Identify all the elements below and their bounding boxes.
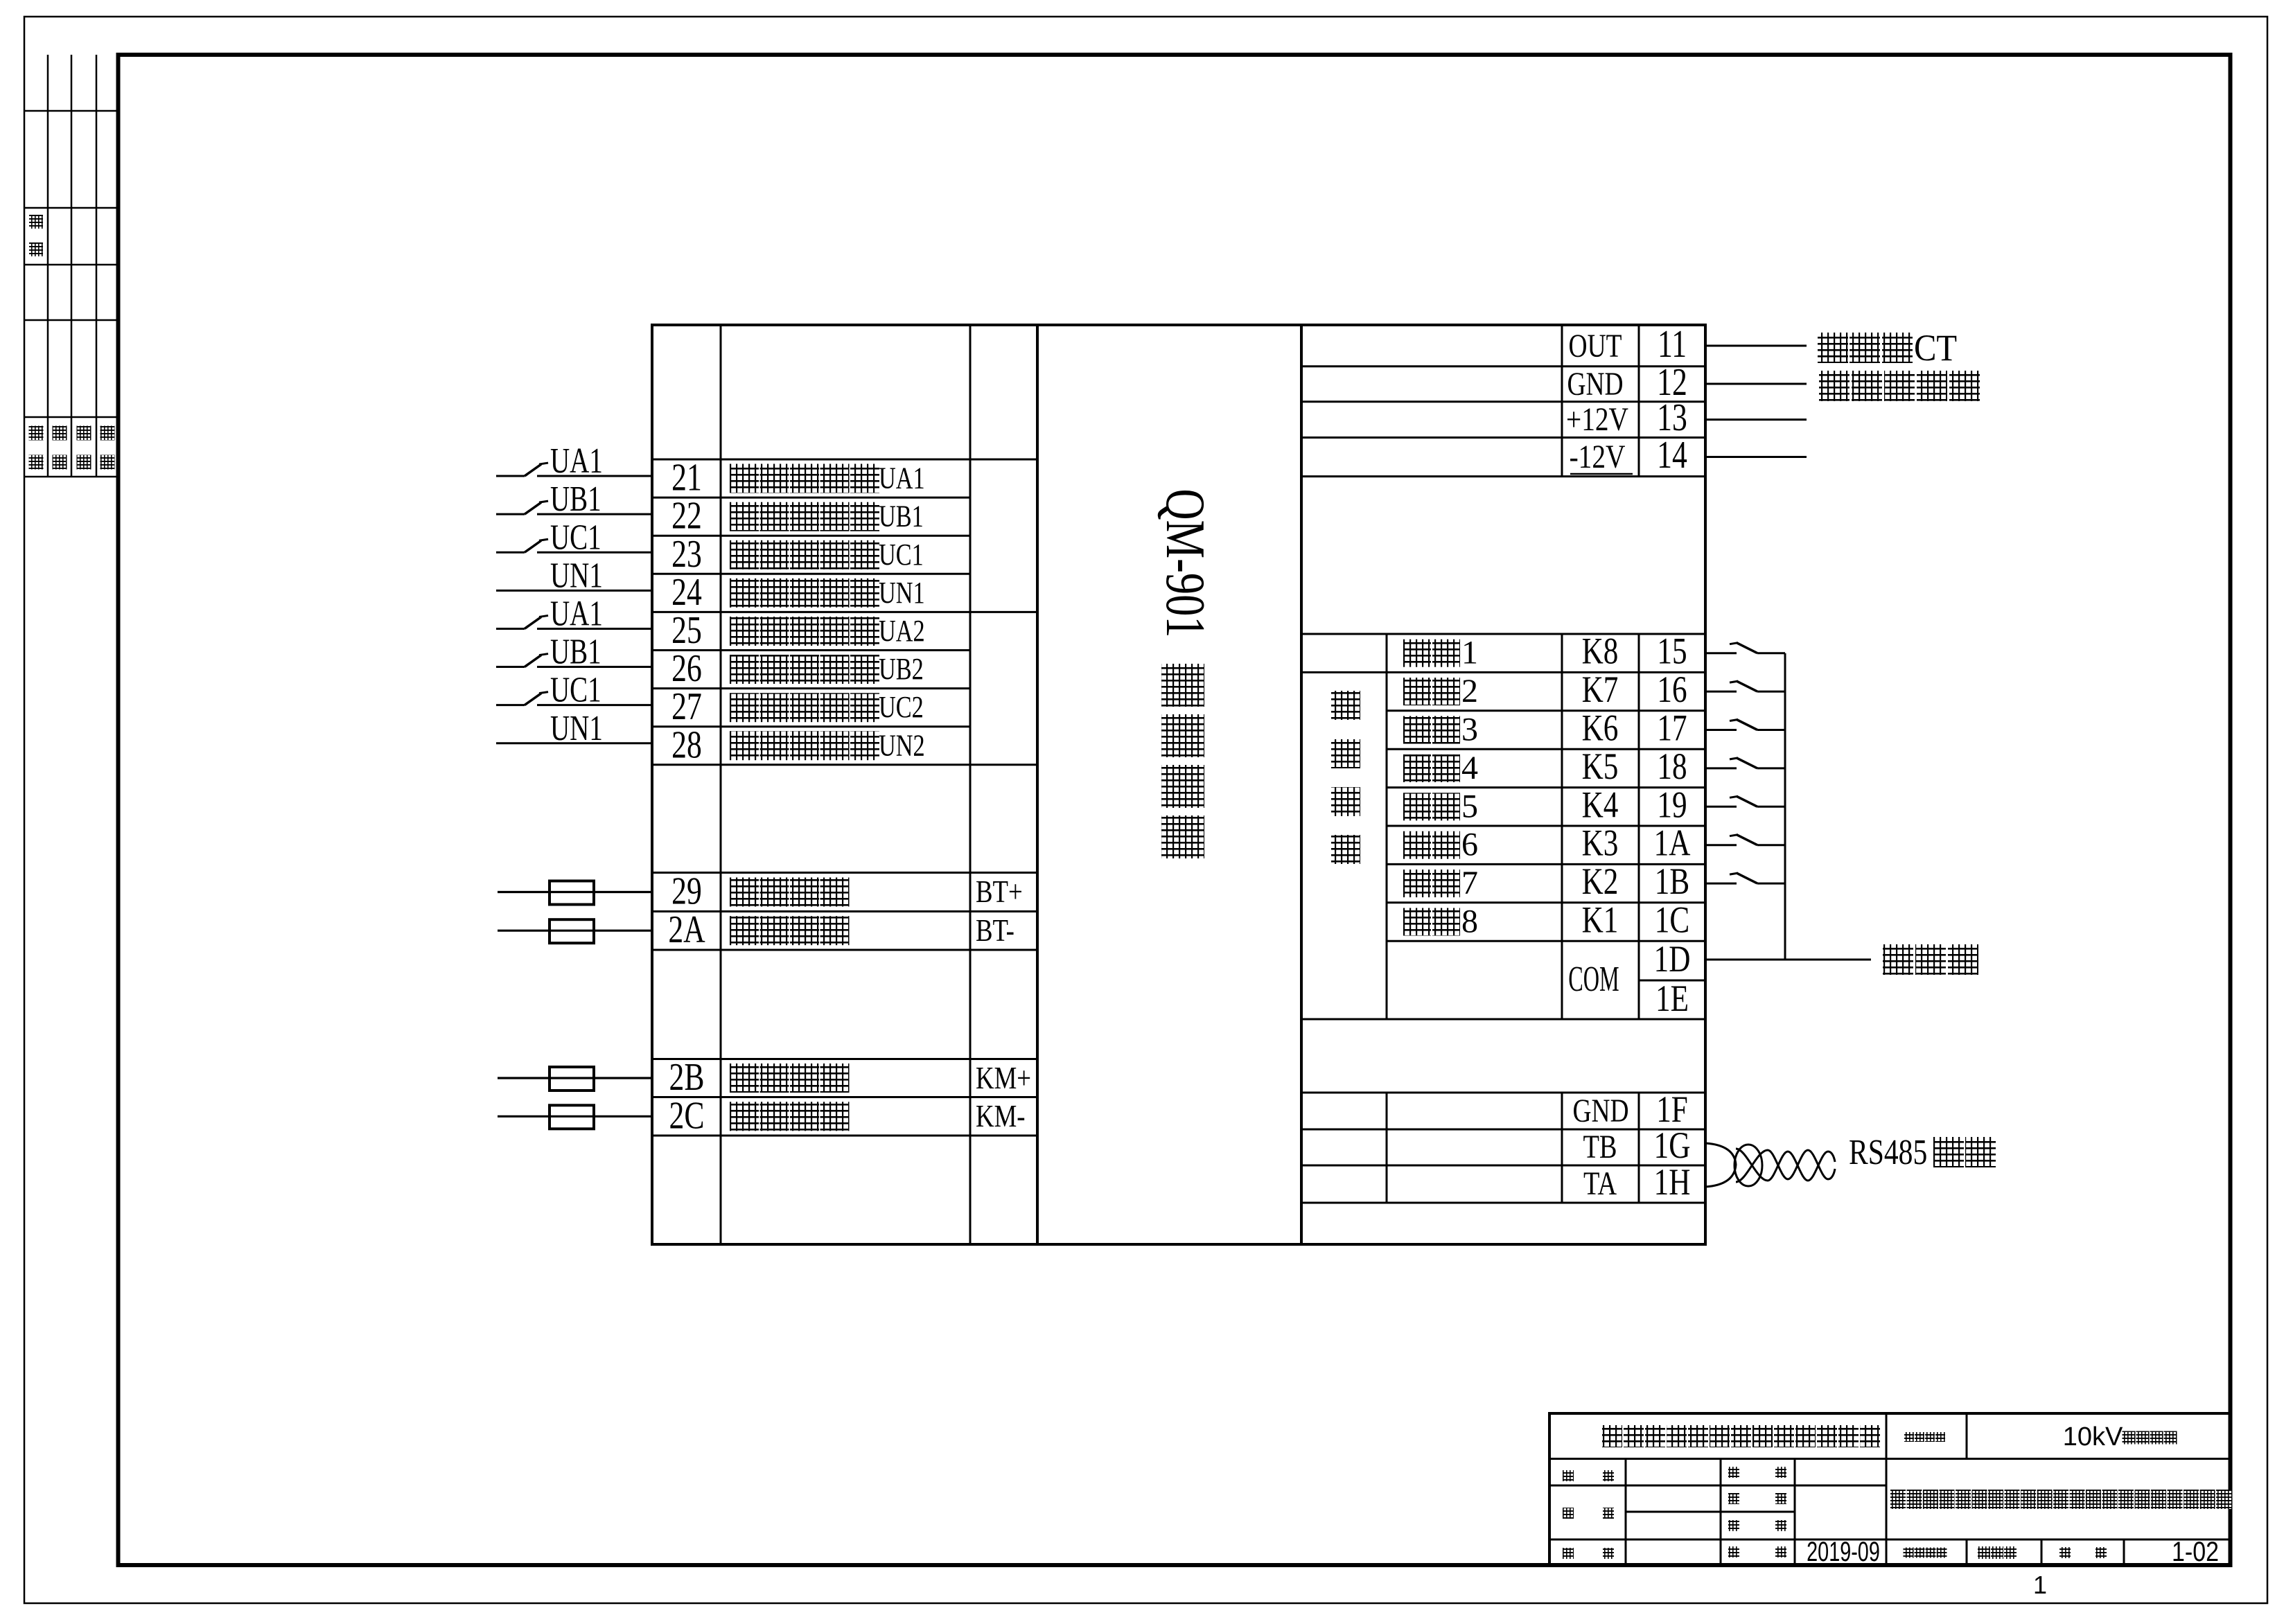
svg-text:-12V: -12V [1570, 439, 1626, 475]
svg-text:14: 14 [1657, 433, 1687, 476]
svg-text:29: 29 [671, 869, 702, 912]
svg-text:OUT: OUT [1569, 328, 1622, 364]
svg-text:5: 5 [1461, 788, 1478, 824]
svg-text:10kV: 10kV [2063, 1422, 2123, 1451]
svg-text:UA2: UA2 [879, 614, 925, 648]
svg-text:UA1: UA1 [879, 461, 925, 495]
svg-text:1E: 1E [1655, 977, 1689, 1019]
svg-text:18: 18 [1657, 745, 1687, 787]
svg-text:BT+: BT+ [976, 874, 1023, 910]
svg-text:GND: GND [1567, 367, 1623, 403]
svg-text:26: 26 [671, 646, 702, 689]
svg-text:2C: 2C [669, 1093, 705, 1136]
svg-text:17: 17 [1657, 707, 1687, 749]
svg-text:23: 23 [671, 532, 702, 575]
svg-text:21: 21 [671, 455, 702, 498]
svg-text:1B: 1B [1655, 860, 1689, 903]
svg-text:UC1: UC1 [550, 517, 601, 557]
svg-text:16: 16 [1657, 669, 1687, 711]
svg-text:25: 25 [671, 608, 702, 651]
svg-text:UC2: UC2 [879, 690, 924, 724]
svg-text:UC1: UC1 [879, 538, 924, 572]
svg-text:19: 19 [1657, 784, 1687, 826]
svg-text:UN1: UN1 [550, 707, 603, 748]
svg-text:3: 3 [1461, 712, 1478, 748]
svg-text:1: 1 [2033, 1571, 2047, 1599]
svg-text:7: 7 [1461, 865, 1478, 901]
svg-text:UA1: UA1 [550, 593, 603, 633]
svg-text:QM-901: QM-901 [1154, 489, 1216, 638]
svg-text:27: 27 [671, 685, 702, 727]
svg-text:K3: K3 [1582, 822, 1619, 864]
svg-text:UB2: UB2 [879, 652, 924, 686]
svg-text:RS485: RS485 [1849, 1133, 1927, 1172]
svg-text:UB1: UB1 [550, 479, 601, 519]
svg-text:1H: 1H [1654, 1160, 1691, 1203]
svg-text:K4: K4 [1582, 784, 1619, 826]
svg-text:28: 28 [671, 723, 702, 766]
svg-text:KM+: KM+ [976, 1061, 1031, 1096]
svg-text:K7: K7 [1582, 669, 1619, 711]
svg-text:BT-: BT- [976, 913, 1014, 948]
svg-text:2A: 2A [668, 908, 705, 951]
svg-text:1D: 1D [1654, 937, 1691, 980]
svg-text:24: 24 [671, 570, 702, 613]
svg-text:UB1: UB1 [879, 500, 924, 533]
svg-text:15: 15 [1657, 630, 1687, 672]
svg-text:TA: TA [1583, 1165, 1617, 1202]
svg-text:2B: 2B [669, 1055, 705, 1098]
svg-text:1A: 1A [1654, 822, 1691, 864]
svg-text:8: 8 [1461, 903, 1478, 940]
svg-text:TB: TB [1583, 1129, 1617, 1165]
svg-text:1C: 1C [1655, 899, 1689, 941]
svg-text:K6: K6 [1582, 707, 1619, 749]
svg-text:6: 6 [1461, 827, 1478, 863]
svg-text:1: 1 [1461, 635, 1478, 671]
svg-text:UN2: UN2 [879, 728, 925, 762]
svg-text:11: 11 [1658, 322, 1687, 365]
svg-text:COM: COM [1568, 959, 1619, 999]
svg-text:UB1: UB1 [550, 631, 601, 671]
svg-text:KM-: KM- [976, 1099, 1026, 1134]
svg-text:2: 2 [1461, 673, 1478, 709]
svg-text:+12V: +12V [1566, 401, 1628, 437]
svg-text:K8: K8 [1582, 630, 1619, 672]
svg-text:UN1: UN1 [879, 576, 925, 610]
svg-text:22: 22 [671, 493, 702, 536]
svg-text:K5: K5 [1582, 745, 1619, 787]
svg-text:K1: K1 [1582, 899, 1619, 941]
svg-text:1-02: 1-02 [2172, 1535, 2219, 1566]
svg-text:4: 4 [1461, 750, 1478, 786]
svg-text:2019-09: 2019-09 [1807, 1536, 1880, 1567]
svg-text:K2: K2 [1582, 860, 1619, 903]
svg-text:GND: GND [1572, 1093, 1628, 1129]
svg-text:UA1: UA1 [550, 441, 603, 481]
svg-text:1G: 1G [1654, 1124, 1691, 1166]
svg-text:UC1: UC1 [550, 669, 601, 709]
svg-text:CT: CT [1914, 328, 1957, 369]
svg-text:UN1: UN1 [550, 555, 603, 595]
